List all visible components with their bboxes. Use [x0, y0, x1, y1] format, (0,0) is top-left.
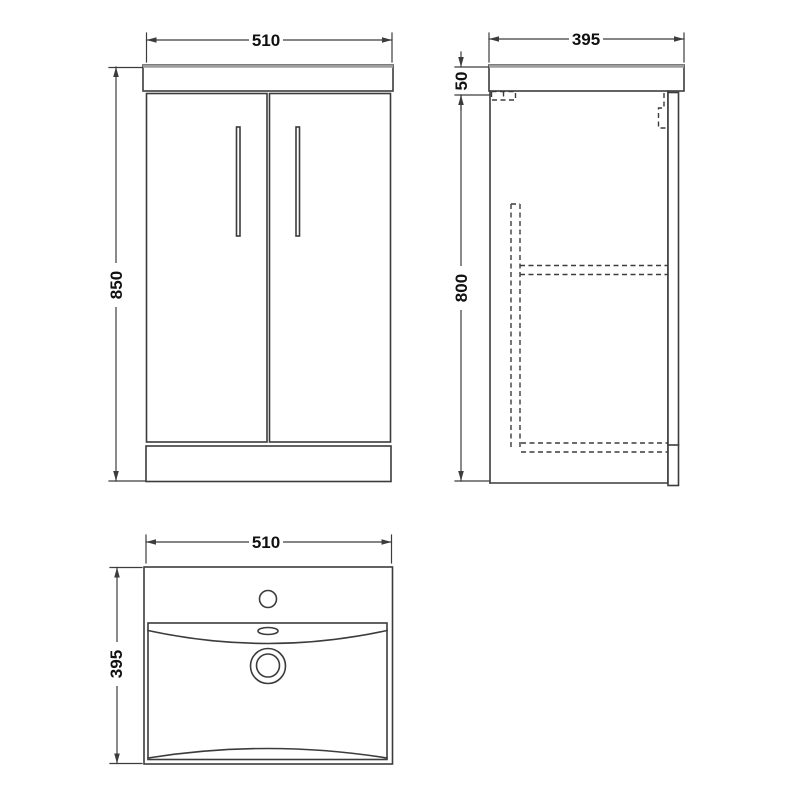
- plinth: [146, 446, 391, 482]
- door-side-panel: [668, 93, 679, 486]
- arrow-right-icon: [674, 36, 684, 42]
- countertop-side: [489, 65, 684, 91]
- arrow-right-icon: [382, 37, 392, 43]
- arrow-up-icon: [458, 95, 464, 105]
- cabinet-height-label: 800: [452, 274, 471, 302]
- arrow-left-icon: [147, 37, 157, 43]
- counter-height-label: 50: [452, 72, 471, 91]
- arrow-down-icon: [458, 57, 464, 67]
- front-view: 510 850: [107, 31, 393, 482]
- front-height-dimension: 850: [107, 67, 145, 481]
- arrow-left-icon: [146, 539, 156, 545]
- hidden-detail: [492, 92, 669, 453]
- left-door-handle: [237, 127, 241, 236]
- drawing-canvas: 510 850: [0, 0, 800, 800]
- plan-depth-label: 395: [107, 650, 126, 678]
- plan-depth-dimension: 395: [107, 568, 142, 764]
- arrow-down-icon: [458, 471, 464, 481]
- left-door: [147, 94, 268, 443]
- hinge-hidden: [659, 93, 669, 128]
- arrow-left-icon: [489, 36, 499, 42]
- arrow-up-icon: [113, 67, 119, 77]
- right-door-handle: [296, 127, 300, 236]
- tap-hole: [260, 591, 277, 608]
- right-door: [270, 94, 391, 443]
- arrow-up-icon: [114, 568, 120, 578]
- overflow-slot: [258, 628, 278, 635]
- side-view: 395 50 800: [452, 30, 684, 486]
- arrow-down-icon: [113, 471, 119, 481]
- front-height-label: 850: [107, 271, 126, 299]
- arrow-right-icon: [382, 539, 392, 545]
- countertop-front: [143, 65, 393, 91]
- waste-drain-inner: [257, 654, 280, 677]
- arrow-down-icon: [114, 754, 120, 764]
- cabinet-height-dimension: 800: [452, 95, 489, 481]
- side-depth-label: 395: [572, 30, 600, 49]
- vanity-technical-drawing: 510 850: [0, 0, 800, 800]
- front-width-label: 510: [252, 31, 280, 50]
- side-depth-dimension: 395: [489, 30, 684, 62]
- front-width-dimension: 510: [147, 31, 393, 62]
- plan-width-dimension: 510: [146, 533, 392, 563]
- plan-view: 510 395: [107, 533, 393, 764]
- plan-width-label: 510: [252, 533, 280, 552]
- counter-height-dimension: 50: [452, 52, 490, 110]
